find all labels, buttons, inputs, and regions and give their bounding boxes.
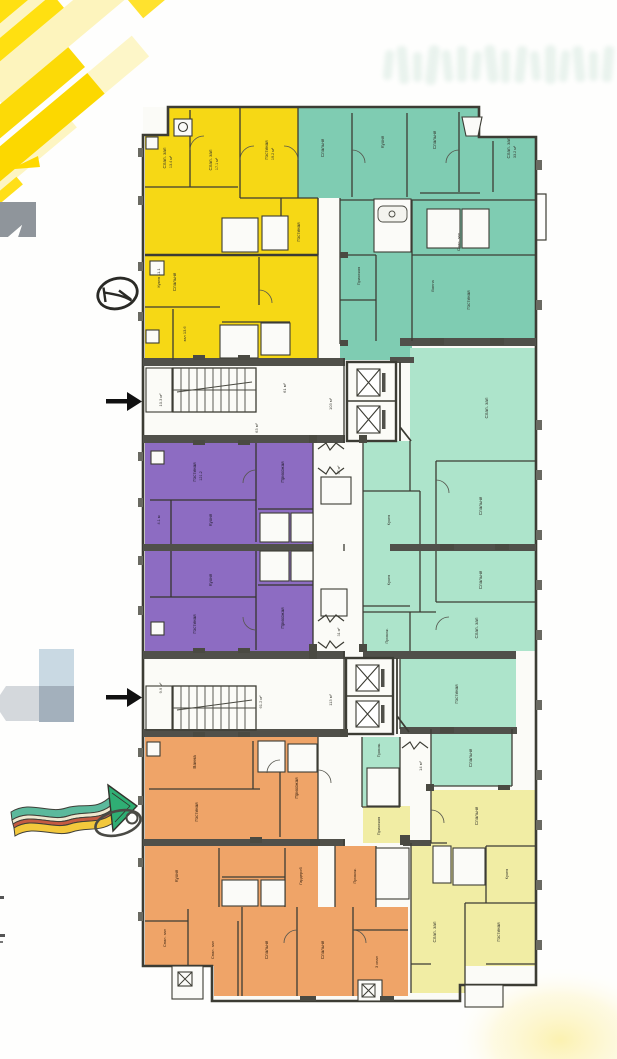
svg-text:9.9 м²: 9.9 м² bbox=[158, 682, 163, 693]
svg-text:Ванна: Ванна bbox=[192, 755, 197, 769]
svg-text:Спал. зал: Спал. зал bbox=[484, 397, 489, 418]
svg-text:Кухня: Кухня bbox=[380, 135, 385, 148]
svg-text:Спальня: Спальня bbox=[478, 496, 483, 515]
svg-text:Гостиная: Гостиная bbox=[496, 922, 501, 942]
svg-text:103 м²: 103 м² bbox=[328, 397, 333, 410]
svg-text:33.2 м²: 33.2 м² bbox=[513, 145, 517, 158]
svg-text:17.1 м²: 17.1 м² bbox=[215, 157, 219, 170]
svg-text:Спал. зал: Спал. зал bbox=[162, 147, 167, 168]
svg-text:Спальня: Спальня bbox=[320, 940, 325, 959]
svg-text:Кухня: Кухня bbox=[208, 513, 213, 526]
svg-text:Спал. зал: Спал. зал bbox=[210, 940, 215, 959]
svg-text:Прихожая: Прихожая bbox=[356, 267, 361, 286]
svg-text:61 м²: 61 м² bbox=[282, 383, 287, 393]
svg-text:Кухня: Кухня bbox=[386, 515, 391, 526]
svg-text:Спальня: Спальня bbox=[478, 570, 483, 589]
svg-text:61.2 м²: 61.2 м² bbox=[258, 695, 263, 709]
svg-text:4.1 м: 4.1 м bbox=[157, 515, 161, 524]
svg-text:Гостиная: Гостиная bbox=[466, 290, 471, 310]
svg-text:113 м²: 113 м² bbox=[328, 694, 333, 706]
svg-text:10.3 м²: 10.3 м² bbox=[158, 393, 163, 407]
svg-text:Спальня: Спальня bbox=[432, 130, 437, 149]
svg-text:Гостиная: Гостиная bbox=[194, 802, 199, 822]
svg-text:Кухня: Кухня bbox=[504, 869, 509, 880]
svg-text:Прихожая: Прихожая bbox=[294, 777, 299, 799]
svg-text:Спальня: Спальня bbox=[468, 748, 473, 767]
svg-text:121.2: 121.2 bbox=[199, 471, 203, 481]
svg-text:Гардероб: Гардероб bbox=[298, 866, 303, 884]
svg-text:Гостиная: Гостиная bbox=[192, 462, 197, 482]
svg-text:Спал. зал: Спал. зал bbox=[208, 149, 213, 170]
svg-text:Гостиная: Гостиная bbox=[454, 684, 459, 704]
svg-text:57 м²: 57 м² bbox=[337, 465, 341, 474]
svg-text:3 спал: 3 спал bbox=[374, 955, 379, 968]
svg-text:14 м²: 14 м² bbox=[418, 761, 423, 771]
svg-text:19.2 м²: 19.2 м² bbox=[271, 147, 275, 160]
svg-text:Спал. зал: Спал. зал bbox=[456, 232, 461, 251]
svg-text:зал 13.6: зал 13.6 bbox=[182, 326, 187, 342]
svg-text:Прихож.: Прихож. bbox=[377, 743, 381, 757]
svg-text:Спальня: Спальня bbox=[264, 940, 269, 959]
svg-text:Кухня 11.1: Кухня 11.1 bbox=[156, 268, 161, 288]
svg-text:Спал. зал: Спал. зал bbox=[162, 928, 167, 947]
svg-text:Прихож.: Прихож. bbox=[352, 868, 357, 883]
svg-text:Прихожая: Прихожая bbox=[280, 461, 285, 483]
svg-text:Кухня: Кухня bbox=[174, 869, 179, 882]
svg-text:Прихож.: Прихож. bbox=[384, 628, 389, 643]
svg-text:Спальня: Спальня bbox=[474, 806, 479, 825]
svg-text:Спал. зал: Спал. зал bbox=[474, 617, 479, 638]
svg-text:31 м²: 31 м² bbox=[337, 627, 341, 636]
svg-text:Спал. зал: Спал. зал bbox=[506, 137, 511, 158]
svg-text:Прихожая: Прихожая bbox=[376, 817, 381, 836]
svg-text:Спальня: Спальня bbox=[172, 272, 177, 291]
svg-text:Гостиная: Гостиная bbox=[264, 140, 269, 160]
svg-text:Ванна: Ванна bbox=[430, 279, 435, 291]
svg-text:63 м²: 63 м² bbox=[254, 423, 259, 433]
svg-text:13.4 м²: 13.4 м² bbox=[169, 155, 173, 168]
svg-text:Кухня: Кухня bbox=[386, 575, 391, 586]
svg-text:Спальня: Спальня bbox=[320, 138, 325, 157]
svg-text:Кухня: Кухня bbox=[208, 573, 213, 586]
svg-text:Гостиная: Гостиная bbox=[192, 614, 197, 634]
svg-text:Гостиная: Гостиная bbox=[296, 222, 301, 242]
svg-text:Спал. зал: Спал. зал bbox=[432, 921, 437, 942]
svg-text:Прихожая: Прихожая bbox=[280, 607, 285, 629]
